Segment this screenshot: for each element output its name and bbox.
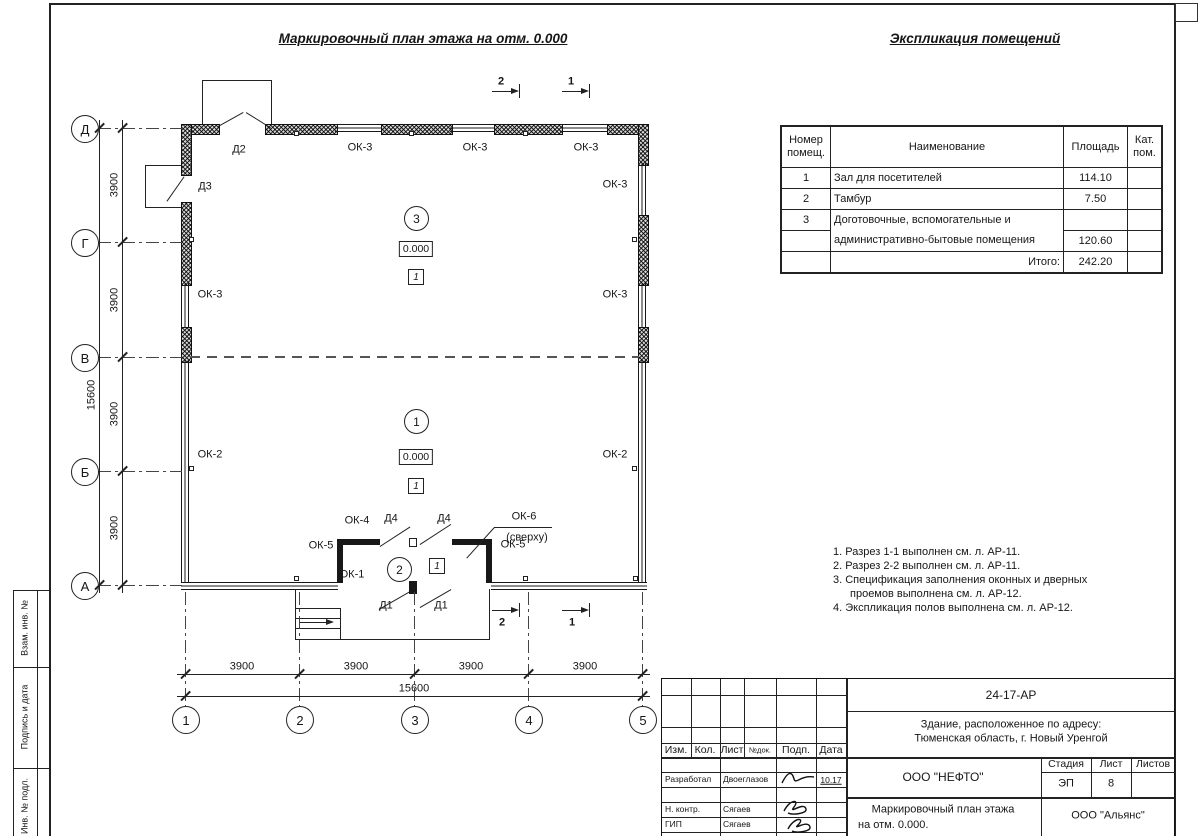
dim-3900: 3900 — [110, 516, 121, 540]
tb-line — [662, 727, 846, 728]
section-tick — [589, 84, 590, 98]
row-name-ncontr: Сягаев — [723, 805, 751, 814]
tb-line — [662, 802, 846, 803]
company: ООО "НЕФТО" — [902, 771, 983, 783]
axis-circle-3: 3 — [401, 706, 429, 734]
room3-number: 3 — [404, 206, 429, 231]
col-data: Дата — [819, 745, 842, 756]
cell-cat — [1128, 168, 1163, 189]
dim-3900: 3900 — [110, 173, 121, 197]
window-ok2 — [181, 360, 189, 583]
wall-left — [181, 327, 192, 363]
label-ok3: ОК-3 — [574, 143, 599, 154]
note-line: 2. Разрез 2-2 выполнен см. л. АР-11. — [833, 559, 1087, 573]
wall-right — [638, 215, 649, 286]
wall-top — [265, 124, 338, 135]
stair-tread — [295, 618, 341, 619]
cell-name: Тамбур — [831, 189, 1064, 210]
stage-label: Стадия — [1048, 759, 1084, 770]
room3-elevation: 0.000 — [399, 241, 433, 257]
sidebox-line — [13, 590, 14, 836]
cell-num: 2 — [781, 189, 831, 210]
tb-line — [744, 679, 745, 757]
col-header-cat: Кат. пом. — [1128, 126, 1163, 168]
axis-mark — [294, 131, 299, 136]
object-line1: Здание, расположенное по адресу: — [921, 720, 1102, 731]
dim-line-left-total — [99, 120, 100, 593]
wall-bottom — [491, 582, 647, 590]
table-row: 3 Доготовочные, вспомогательные и админи… — [781, 210, 1162, 231]
cell-area: 7.50 — [1064, 189, 1128, 210]
tb-line — [691, 679, 692, 757]
ok6-leader-shelf — [494, 527, 552, 528]
tb-line — [846, 797, 1176, 799]
side-label-podpis: Подпись и дата — [21, 685, 30, 750]
axis-line-2 — [299, 592, 300, 706]
tb-line — [662, 817, 846, 818]
axis-circle-4: 4 — [515, 706, 543, 734]
axis-line-5 — [642, 592, 643, 706]
label-ok3: ОК-3 — [603, 290, 628, 301]
axis-mark — [409, 131, 414, 136]
axis-letter: Б — [81, 465, 90, 480]
axis-number: 5 — [639, 713, 646, 728]
dim-3900: 3900 — [573, 662, 597, 673]
frame-left — [49, 3, 51, 836]
label-d1: Д1 — [379, 601, 393, 612]
side-label-inv: Инв. № подл. — [21, 778, 30, 834]
stairs — [295, 608, 341, 640]
room1-floor-type: 1 — [408, 478, 424, 494]
col-list: Лист — [721, 745, 744, 756]
room1-number: 1 — [404, 409, 429, 434]
label-ok3: ОК-3 — [603, 180, 628, 191]
axis-letter: Г — [81, 236, 88, 251]
cell-name-line: Доготовочные, вспомогательные и — [834, 210, 1060, 230]
sidebox-line — [13, 590, 50, 591]
doc-number: 24-17-АР — [986, 689, 1037, 701]
room-number: 3 — [413, 212, 420, 226]
side-label-vzam: Взам. инв. № — [21, 600, 30, 656]
section-tick — [589, 603, 590, 617]
porch-d2-left — [202, 80, 203, 124]
axis-mark — [632, 466, 637, 471]
col-podp: Подп. — [782, 745, 810, 756]
room3-floor-type: 1 — [408, 269, 424, 285]
dim-3900: 3900 — [110, 288, 121, 312]
axis-line-d — [98, 128, 182, 129]
room-number: 2 — [396, 563, 403, 577]
table-row: 2 Тамбур 7.50 — [781, 189, 1162, 210]
wall-right — [638, 327, 649, 363]
cell-area: 120.60 — [1064, 231, 1128, 252]
dim-3900: 3900 — [459, 662, 483, 673]
wall-left — [181, 124, 192, 176]
label-d3: Д3 — [198, 182, 212, 193]
dim-3900: 3900 — [230, 662, 254, 673]
section-arrowhead — [581, 88, 589, 94]
porch-d3-left — [145, 165, 146, 208]
room-number: 1 — [413, 415, 420, 429]
tb-line — [1041, 772, 1176, 773]
door-d4-leaf — [380, 526, 411, 547]
note-line: 4. Экспликация полов выполнена см. л. АР… — [833, 601, 1087, 615]
cell-cat — [1128, 231, 1163, 252]
axis-letter: Д — [81, 122, 90, 137]
drawing-title-line2: на отм. 0.000. — [858, 820, 928, 831]
frame-top — [49, 3, 1176, 5]
col-ndoc: №док. — [749, 746, 771, 754]
porch-d2-top — [202, 80, 272, 81]
stair-arrow-line — [300, 622, 328, 623]
room-schedule-table: Номер помещ. Наименование Площадь Кат. п… — [780, 125, 1163, 274]
axis-line-a — [98, 585, 182, 586]
signature — [780, 767, 816, 787]
col-header-num: Номер помещ. — [781, 126, 831, 168]
label-ok3: ОК-3 — [348, 143, 373, 154]
label-ok2: ОК-2 — [603, 450, 628, 461]
plan-title: Маркировочный план этажа на отм. 0.000 — [279, 31, 568, 46]
dim-3900: 3900 — [110, 402, 121, 426]
zone-dashed-line — [190, 356, 639, 358]
title-block: 24-17-АР Здание, расположенное по адресу… — [661, 678, 1175, 836]
cell-name-line: административно-бытовые помещения — [834, 230, 1060, 250]
tambour-post — [409, 538, 417, 547]
dim-line-bottom-total — [177, 696, 650, 697]
axis-mark — [189, 237, 194, 242]
door-d4-leaf — [420, 524, 452, 545]
cell-area: 114.10 — [1064, 168, 1128, 189]
window-ok2 — [638, 360, 646, 583]
cell-num: 3 — [781, 210, 831, 231]
row-role-developed: Разработал — [665, 775, 711, 784]
door-d2-leaf — [246, 112, 271, 128]
wall-right — [638, 124, 649, 166]
note-line: 3. Спецификация заполнения оконных и две… — [833, 573, 1087, 587]
door-d2-leaf — [218, 112, 244, 127]
tb-line — [662, 772, 846, 773]
door-d3-leaf — [166, 176, 184, 201]
col-header-area: Площадь — [1064, 126, 1128, 168]
section-arrowhead — [581, 607, 589, 613]
stair-arrowhead — [326, 619, 334, 625]
axis-circle-v: В — [71, 344, 99, 372]
sheets-label: Листов — [1136, 759, 1170, 770]
corner-box — [1175, 3, 1198, 22]
cell-num — [781, 231, 831, 252]
tb-line — [1091, 757, 1092, 797]
label-d2: Д2 — [232, 145, 246, 156]
room2-number: 2 — [387, 557, 412, 582]
porch-d2-right — [271, 80, 272, 124]
sidebox-line — [37, 590, 38, 836]
section-arrowhead — [511, 88, 519, 94]
room1-elevation: 0.000 — [399, 449, 433, 465]
label-d4: Д4 — [437, 514, 451, 525]
row-name-developed: Двоеглазов — [723, 775, 768, 784]
dim-3900: 3900 — [344, 662, 368, 673]
object-line2: Тюменская область, г. Новый Уренгой — [914, 734, 1107, 745]
axis-circle-g: Г — [71, 229, 99, 257]
row-name-gip: Сягаев — [723, 820, 751, 829]
label-ok1: ОК-1 — [340, 570, 365, 581]
dim-15600: 15600 — [87, 380, 98, 411]
col-izm: Изм. — [665, 745, 688, 756]
sheet-value: 8 — [1108, 779, 1114, 790]
axis-circle-b: Б — [71, 458, 99, 486]
axis-mark — [189, 466, 194, 471]
axis-mark — [294, 576, 299, 581]
wall-left — [181, 202, 192, 286]
porch-d3-top — [145, 165, 182, 166]
table-row: 1 Зал для посетителей 114.10 — [781, 168, 1162, 189]
axis-mark — [523, 131, 528, 136]
tambour-wall-right — [486, 539, 492, 583]
axis-number: 1 — [182, 713, 189, 728]
axis-letter: А — [81, 579, 90, 594]
table-title: Экспликация помещений — [890, 31, 1061, 46]
tb-line — [662, 832, 846, 833]
drawing-sheet: Взам. инв. № Подпись и дата Инв. № подл.… — [0, 0, 1200, 836]
axis-line-1 — [185, 592, 186, 706]
axis-mark — [523, 576, 528, 581]
section-tick — [519, 603, 520, 617]
drawing-title-line1: Маркировочный план этажа — [872, 805, 1015, 816]
label-ok4: ОК-4 — [345, 516, 370, 527]
row-date-developed: 10.17 — [820, 776, 841, 785]
label-ok2: ОК-2 — [198, 450, 223, 461]
section-mark-2-top: 2 — [498, 77, 504, 88]
note-line: проемов выполнена см. л. АР-12. — [833, 587, 1087, 601]
row-role-gip: ГИП — [665, 820, 682, 829]
cell-num — [781, 252, 831, 274]
axis-number: 4 — [525, 713, 532, 728]
section-arrowhead — [511, 607, 519, 613]
window-ok3 — [335, 124, 382, 132]
section-mark-1-bottom: 1 — [569, 618, 575, 629]
axis-circle-a: А — [71, 572, 99, 600]
label-ok5: ОК-5 — [501, 540, 526, 551]
stair-tread — [295, 628, 341, 629]
signature — [780, 797, 814, 835]
axis-line-g — [98, 242, 182, 243]
label-ok5: ОК-5 — [309, 541, 334, 552]
sidebox-line — [13, 768, 50, 769]
cell-name: Доготовочные, вспомогательные и админист… — [831, 210, 1064, 252]
label-d1: Д1 — [434, 601, 448, 612]
cell-name: Зал для посетителей — [831, 168, 1064, 189]
axis-line-v — [98, 357, 182, 358]
axis-circle-2: 2 — [286, 706, 314, 734]
cell-cat — [1128, 210, 1163, 231]
section-mark-1-top: 1 — [568, 77, 574, 88]
axis-line-4 — [528, 592, 529, 706]
porch-d3-bottom — [145, 207, 182, 208]
tambour-wall-topleft — [337, 539, 380, 545]
wall-top — [381, 124, 453, 135]
cell-cat — [1128, 252, 1163, 274]
cell-name: Итого: — [831, 252, 1064, 274]
sheet-label: Лист — [1100, 759, 1123, 770]
tb-line — [662, 787, 846, 788]
label-ok3: ОК-3 — [198, 290, 223, 301]
window-ok3 — [181, 283, 189, 328]
wall-top — [494, 124, 563, 135]
window-ok3 — [638, 163, 646, 216]
axis-circle-d: Д — [71, 115, 99, 143]
stage-value: ЭП — [1058, 779, 1074, 790]
org: ООО "Альянс" — [1071, 811, 1145, 822]
axis-circle-5: 5 — [629, 706, 657, 734]
axis-mark — [633, 576, 638, 581]
axis-number: 2 — [296, 713, 303, 728]
tb-line — [662, 695, 846, 696]
axis-mark — [632, 237, 637, 242]
axis-letter: В — [81, 351, 90, 366]
section-mark-2-bottom: 2 — [499, 618, 505, 629]
cell-cat — [1128, 189, 1163, 210]
sidebox-line — [13, 667, 50, 668]
axis-circle-1: 1 — [172, 706, 200, 734]
notes-block: 1. Разрез 1-1 выполнен см. л. АР-11. 2. … — [833, 545, 1087, 615]
tb-line — [1131, 757, 1132, 797]
window-ok3 — [638, 283, 646, 328]
note-line: 1. Разрез 1-1 выполнен см. л. АР-11. — [833, 545, 1087, 559]
tb-line — [846, 711, 1176, 712]
window-ok3 — [450, 124, 495, 132]
cell-area — [1064, 210, 1128, 231]
cell-num: 1 — [781, 168, 831, 189]
label-d4: Д4 — [384, 514, 398, 525]
label-ok6: ОК-6 — [512, 512, 537, 523]
axis-number: 3 — [411, 713, 418, 728]
label-ok3: ОК-3 — [463, 143, 488, 154]
row-role-ncontr: Н. контр. — [665, 805, 700, 814]
col-kol: Кол. — [695, 745, 716, 756]
room2-floor-type: 1 — [429, 558, 445, 574]
dim-15600: 15600 — [399, 684, 430, 695]
window-ok3 — [560, 124, 608, 132]
col-header-name: Наименование — [831, 126, 1064, 168]
cell-area: 242.20 — [1064, 252, 1128, 274]
table-row: Итого: 242.20 — [781, 252, 1162, 274]
axis-line-b — [98, 471, 182, 472]
section-tick — [519, 84, 520, 98]
